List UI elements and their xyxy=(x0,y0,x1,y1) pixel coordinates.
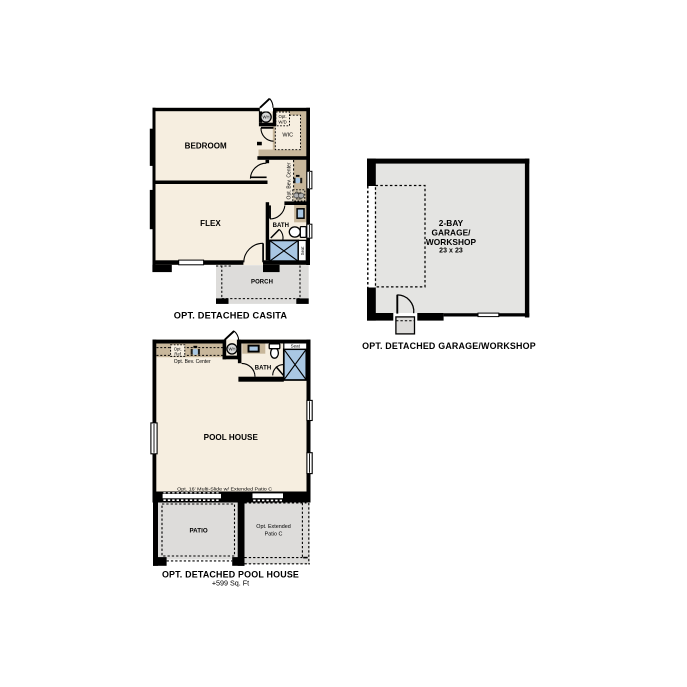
svg-text:Seat: Seat xyxy=(300,246,305,255)
svg-text:OPT. DETACHED CASITA: OPT. DETACHED CASITA xyxy=(174,311,288,321)
svg-text:Ref: Ref xyxy=(174,351,181,356)
svg-text:23 x 23: 23 x 23 xyxy=(439,248,463,255)
svg-text:WH: WH xyxy=(229,347,236,352)
svg-text:OPT. DETACHED GARAGE/WORKSHOP: OPT. DETACHED GARAGE/WORKSHOP xyxy=(362,341,536,351)
svg-text:Opt.: Opt. xyxy=(279,114,287,119)
svg-text:Seat: Seat xyxy=(291,344,301,349)
svg-text:Opt.: Opt. xyxy=(295,191,302,195)
svg-text:2-BAY: 2-BAY xyxy=(439,218,464,228)
svg-text:Opt. 16' Multi-Slide w/ Extend: Opt. 16' Multi-Slide w/ Extended Patio C xyxy=(177,487,273,492)
svg-text:FLEX: FLEX xyxy=(200,219,221,228)
svg-text:W/D: W/D xyxy=(278,119,286,124)
svg-text:WH: WH xyxy=(263,115,270,120)
svg-text:Ref: Ref xyxy=(296,197,302,201)
svg-text:+599 Sq. Ft: +599 Sq. Ft xyxy=(212,578,249,587)
svg-text:BATH: BATH xyxy=(255,366,271,372)
svg-text:PORCH: PORCH xyxy=(251,280,273,286)
svg-text:Opt. Bev. Center: Opt. Bev. Center xyxy=(174,359,211,365)
svg-text:PATIO: PATIO xyxy=(189,527,207,534)
svg-text:WIC: WIC xyxy=(282,133,293,139)
svg-text:Opt. Extended: Opt. Extended xyxy=(256,524,290,530)
svg-text:BEDROOM: BEDROOM xyxy=(185,141,227,150)
svg-text:Opt. Bev. Center: Opt. Bev. Center xyxy=(286,162,292,199)
svg-text:POOL HOUSE: POOL HOUSE xyxy=(204,433,259,442)
svg-text:Patio C: Patio C xyxy=(265,531,283,537)
svg-text:WORKSHOP: WORKSHOP xyxy=(426,237,477,247)
svg-text:BATH: BATH xyxy=(273,223,289,229)
